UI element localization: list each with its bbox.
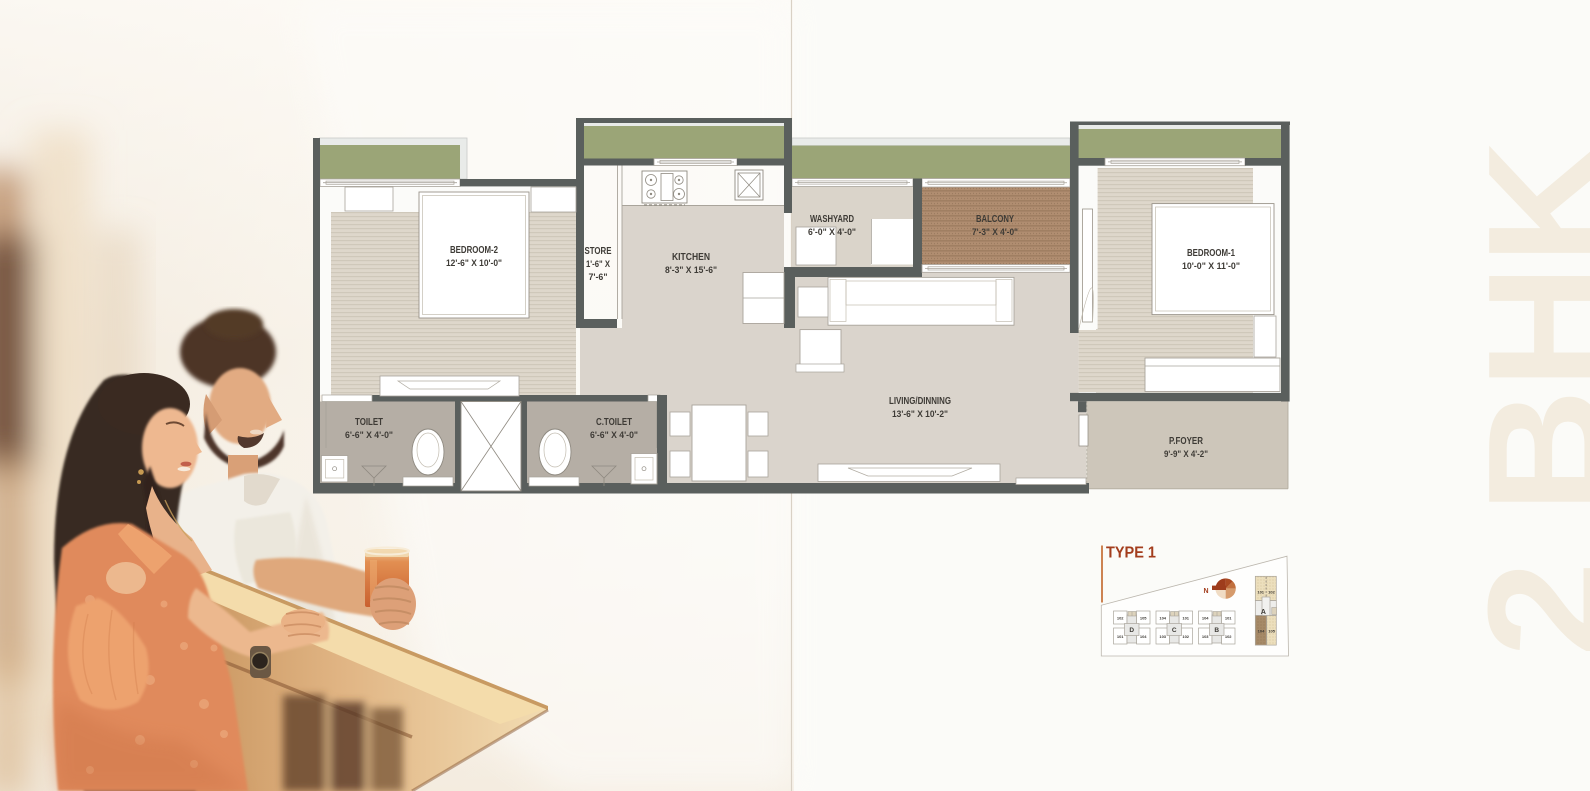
svg-text:6'-6" X 4'-0": 6'-6" X 4'-0" — [590, 430, 638, 441]
svg-text:STORE: STORE — [585, 246, 612, 257]
svg-text:2 BHK: 2 BHK — [1454, 140, 1590, 657]
svg-text:BEDROOM-1: BEDROOM-1 — [1187, 247, 1235, 259]
svg-text:WASHYARD: WASHYARD — [810, 213, 854, 225]
svg-text:6'-6" X 4'-0": 6'-6" X 4'-0" — [345, 430, 393, 441]
svg-text:103: 103 — [1202, 634, 1209, 639]
svg-text:A: A — [1261, 607, 1266, 616]
svg-text:105: 105 — [1140, 616, 1147, 621]
svg-text:D: D — [1129, 627, 1134, 634]
svg-text:7'-6": 7'-6" — [589, 272, 608, 283]
svg-text:102: 102 — [1225, 634, 1232, 639]
svg-text:101: 101 — [1257, 590, 1264, 595]
svg-text:6'-0" X 4'-0": 6'-0" X 4'-0" — [808, 227, 856, 238]
svg-text:10'-0" X 11'-0": 10'-0" X 11'-0" — [1182, 261, 1240, 272]
svg-text:TYPE 1: TYPE 1 — [1106, 545, 1156, 562]
svg-text:N: N — [1203, 588, 1208, 595]
svg-text:C.TOILET: C.TOILET — [596, 416, 632, 428]
svg-text:104: 104 — [1140, 634, 1147, 639]
svg-text:13'-6" X 10'-2": 13'-6" X 10'-2" — [892, 409, 948, 420]
svg-text:C: C — [1172, 627, 1177, 634]
svg-text:101: 101 — [1117, 634, 1124, 639]
svg-text:B: B — [1214, 627, 1219, 634]
svg-text:102: 102 — [1117, 616, 1124, 621]
svg-text:TOILET: TOILET — [355, 416, 383, 428]
svg-text:101: 101 — [1182, 616, 1189, 621]
svg-text:9'-9" X 4'-2": 9'-9" X 4'-2" — [1164, 449, 1208, 460]
svg-text:12'-6" X 10'-0": 12'-6" X 10'-0" — [446, 258, 502, 269]
svg-text:8'-3" X 15'-6": 8'-3" X 15'-6" — [665, 265, 717, 276]
svg-text:LIVING/DINNING: LIVING/DINNING — [889, 395, 951, 407]
svg-text:BEDROOM-2: BEDROOM-2 — [450, 244, 498, 256]
svg-text:7'-3" X 4'-0": 7'-3" X 4'-0" — [972, 227, 1018, 238]
svg-text:104: 104 — [1258, 629, 1265, 634]
svg-text:102: 102 — [1182, 634, 1189, 639]
svg-text:104: 104 — [1159, 616, 1166, 621]
svg-text:KITCHEN: KITCHEN — [672, 251, 710, 263]
svg-text:101: 101 — [1225, 616, 1232, 621]
svg-text:104: 104 — [1202, 616, 1209, 621]
svg-text:103: 103 — [1159, 634, 1166, 639]
svg-text:1'-6" X: 1'-6" X — [586, 259, 610, 270]
svg-text:P.FOYER: P.FOYER — [1169, 435, 1203, 447]
svg-text:BALCONY: BALCONY — [976, 213, 1014, 225]
svg-text:105: 105 — [1268, 629, 1275, 634]
svg-text:102: 102 — [1268, 590, 1275, 595]
